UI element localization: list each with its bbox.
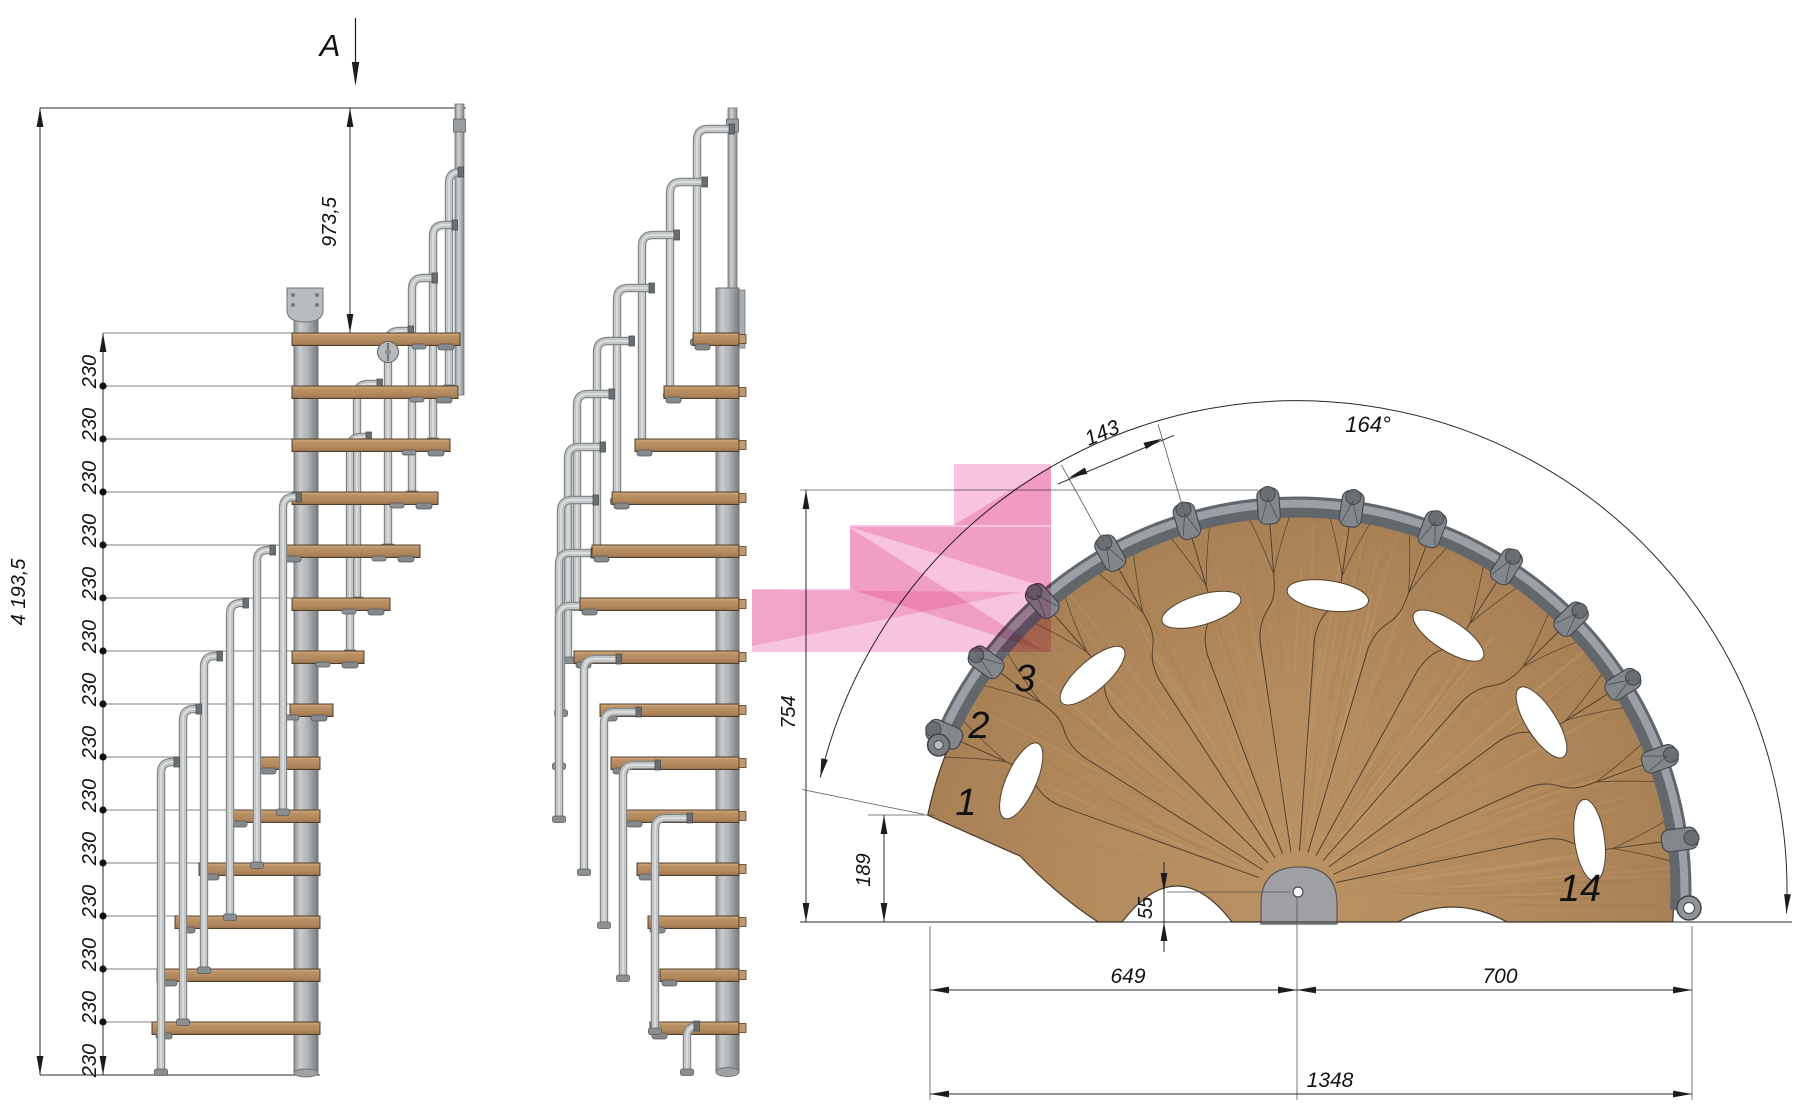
svg-text:230: 230 <box>79 938 101 972</box>
svg-text:2: 2 <box>967 705 989 747</box>
svg-text:230: 230 <box>79 408 101 442</box>
svg-text:55: 55 <box>1135 896 1157 919</box>
svg-text:189: 189 <box>853 853 875 886</box>
svg-text:230: 230 <box>79 726 101 760</box>
svg-text:230: 230 <box>79 355 101 389</box>
svg-text:973,5: 973,5 <box>319 196 341 247</box>
svg-text:230: 230 <box>79 1044 101 1078</box>
svg-text:230: 230 <box>79 620 101 654</box>
svg-text:14: 14 <box>1559 868 1601 910</box>
svg-text:230: 230 <box>79 991 101 1025</box>
svg-text:230: 230 <box>79 673 101 707</box>
svg-text:649: 649 <box>1110 965 1145 988</box>
svg-text:4 193,5: 4 193,5 <box>8 558 30 626</box>
svg-text:700: 700 <box>1482 965 1517 988</box>
svg-text:1: 1 <box>955 782 976 824</box>
svg-text:230: 230 <box>79 885 101 919</box>
svg-text:230: 230 <box>79 461 101 495</box>
svg-text:754: 754 <box>778 695 800 728</box>
svg-text:230: 230 <box>79 567 101 601</box>
svg-text:230: 230 <box>79 514 101 548</box>
svg-text:230: 230 <box>79 779 101 813</box>
svg-text:A: A <box>318 28 341 63</box>
svg-text:230: 230 <box>79 832 101 866</box>
svg-text:3: 3 <box>1014 658 1035 700</box>
svg-text:164°: 164° <box>1345 412 1391 437</box>
svg-text:1348: 1348 <box>1307 1069 1354 1092</box>
